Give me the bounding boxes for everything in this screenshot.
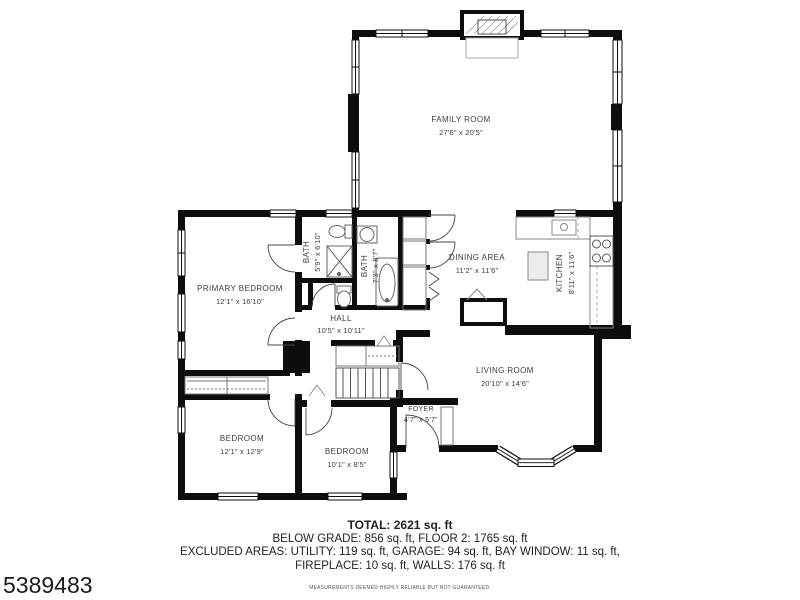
- svg-text:FAMILY ROOM: FAMILY ROOM: [431, 115, 490, 124]
- summary-line-3: EXCLUDED AREAS: UTILITY: 119 sq. ft, GAR…: [0, 546, 800, 560]
- disclaimer-text: MEASUREMENTS DEEMED HIGHLY RELIABLE BUT …: [0, 585, 800, 591]
- kitchen-label: KITCHEN 8'11" x 11'6": [555, 252, 576, 295]
- svg-text:27'6" x 20'5": 27'6" x 20'5": [439, 128, 483, 137]
- primary-bedroom-label: PRIMARY BEDROOM 12'1" x 16'10": [197, 284, 283, 306]
- stove: [590, 236, 613, 266]
- toilet: [329, 225, 352, 238]
- svg-text:BEDROOM: BEDROOM: [220, 434, 264, 443]
- svg-text:8'11" x 11'6": 8'11" x 11'6": [567, 252, 576, 295]
- living-room-label: LIVING ROOM 20'10" x 14'6": [476, 366, 534, 388]
- family-room-label: FAMILY ROOM 27'6" x 20'5": [431, 115, 490, 137]
- toilet: [337, 286, 351, 307]
- shower: [327, 246, 352, 277]
- bedroom-2-label: BEDROOM 10'1" x 8'5": [325, 447, 369, 469]
- svg-text:4'7" x 5'7": 4'7" x 5'7": [404, 417, 438, 424]
- svg-text:10'1" x 8'5": 10'1" x 8'5": [327, 460, 366, 469]
- svg-text:PRIMARY BEDROOM: PRIMARY BEDROOM: [197, 284, 283, 293]
- kitchen-sink: [552, 220, 576, 235]
- floor-plan-page: { "rooms": { "family_room": {"name": "FA…: [0, 0, 800, 600]
- svg-text:BATH: BATH: [360, 255, 369, 277]
- svg-text:20'10" x 14'6": 20'10" x 14'6": [481, 379, 529, 388]
- svg-text:LIVING ROOM: LIVING ROOM: [476, 366, 534, 375]
- svg-text:12'1" x 16'10": 12'1" x 16'10": [216, 297, 264, 306]
- floor-plan-svg: FAMILY ROOM 27'6" x 20'5" PRIMARY BEDROO…: [0, 0, 800, 520]
- listing-id: 5389483: [3, 572, 93, 599]
- summary-line-2: BELOW GRADE: 856 sq. ft, FLOOR 2: 1765 s…: [0, 533, 800, 547]
- svg-text:7'3" x 8'7": 7'3" x 8'7": [371, 248, 380, 283]
- stairs: [336, 368, 399, 398]
- svg-text:12'1" x 12'9": 12'1" x 12'9": [220, 447, 264, 456]
- bath-large-label: BATH 7'3" x 8'7": [360, 248, 380, 283]
- bedroom-1-label: BEDROOM 12'1" x 12'9": [220, 434, 264, 456]
- dining-area-label: DINING AREA 11'2" x 11'6": [449, 253, 505, 275]
- svg-text:5'9" x 6'10": 5'9" x 6'10": [313, 232, 322, 271]
- chimney: [462, 289, 505, 324]
- fireplace: [462, 12, 522, 58]
- svg-text:HALL: HALL: [330, 314, 352, 323]
- svg-text:BATH: BATH: [302, 241, 311, 263]
- svg-text:KITCHEN: KITCHEN: [555, 254, 564, 292]
- bay-window: [498, 449, 574, 467]
- sink: [357, 226, 377, 243]
- svg-text:BEDROOM: BEDROOM: [325, 447, 369, 456]
- kitchen-fixtures: [516, 217, 613, 328]
- area-summary: TOTAL: 2621 sq. ft BELOW GRADE: 856 sq. …: [0, 519, 800, 573]
- summary-line-4: FIREPLACE: 10 sq. ft, WALLS: 176 sq. ft: [0, 560, 800, 574]
- total-area: TOTAL: 2621 sq. ft: [0, 519, 800, 533]
- bath-small-label: BATH 5'9" x 6'10": [302, 232, 322, 271]
- svg-text:DINING AREA: DINING AREA: [449, 253, 505, 262]
- svg-text:10'5" x 10'11": 10'5" x 10'11": [317, 326, 365, 335]
- svg-text:11'2" x 11'6": 11'2" x 11'6": [456, 266, 499, 275]
- svg-text:FOYER: FOYER: [408, 406, 434, 413]
- floor-plan: FAMILY ROOM 27'6" x 20'5" PRIMARY BEDROO…: [0, 0, 800, 520]
- kitchen-peninsula: [528, 252, 548, 280]
- hall-label: HALL 10'5" x 10'11": [317, 314, 365, 335]
